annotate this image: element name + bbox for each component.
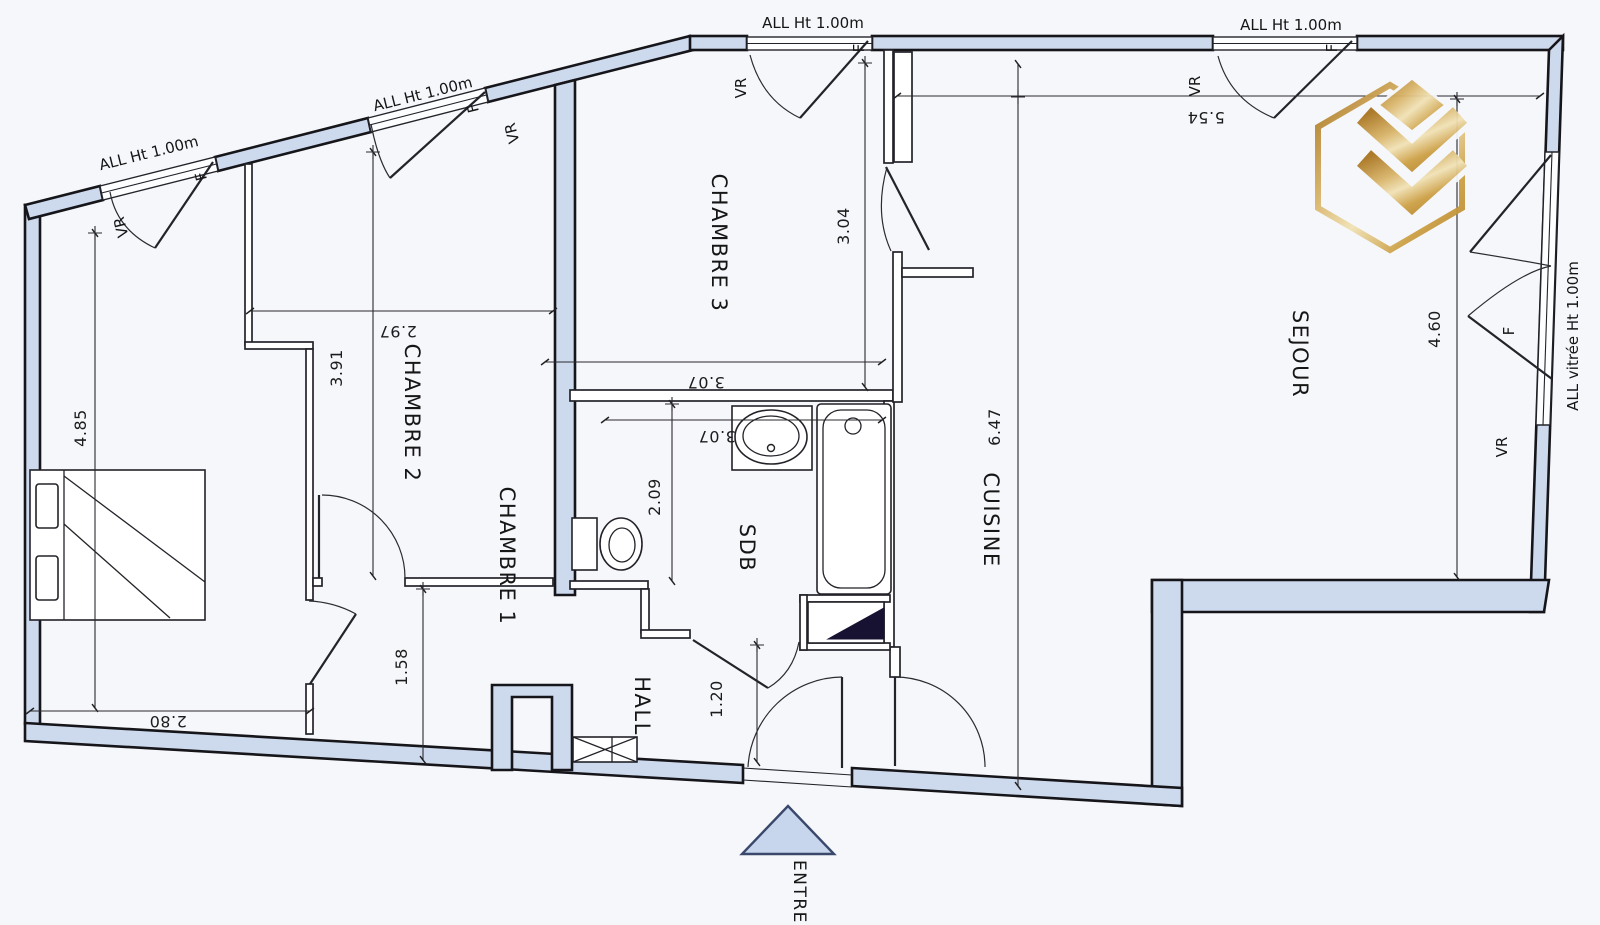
- door-window-chambre3-arc: [750, 55, 800, 118]
- dim-chambre1-width: 2.80: [149, 712, 187, 731]
- toilet-tank: [572, 518, 597, 570]
- wall-ch2-hall-left: [313, 578, 322, 586]
- wall-sdb-sw-a: [570, 581, 648, 589]
- dim-sdb-width: 3.07: [698, 427, 736, 446]
- wall-top-a: [690, 36, 747, 50]
- dim-chambre2-width: 2.97: [379, 322, 417, 341]
- vr-label-sejour-right: VR: [1493, 437, 1511, 458]
- bed-pillow-1: [36, 484, 58, 528]
- wall-slant-b: [215, 118, 371, 171]
- dim-hall-width: 1.58: [392, 648, 411, 686]
- door-ch3-cuisine-arc: [881, 167, 891, 251]
- vr-label-chambre2: VR: [501, 121, 523, 145]
- vr-label-chambre1: VR: [110, 215, 132, 239]
- wall-sdb-sw-c: [641, 630, 690, 638]
- room-label-chambre1: CHAMBRE 1: [495, 487, 519, 626]
- kitchen-counter-stub: [902, 268, 973, 277]
- door-french-upper-leaf: [1470, 155, 1551, 252]
- glazed-allege-label: ALL vitrée Ht 1.00m: [1564, 261, 1582, 411]
- wall-left: [25, 205, 40, 726]
- door-window-sejour-arc: [1218, 56, 1274, 118]
- dim-entry-width: 1.20: [707, 680, 726, 718]
- door-cuisine-arc: [895, 677, 985, 767]
- f-label-sejour-top: F: [1323, 44, 1341, 53]
- door-chambre1-arc: [309, 601, 356, 614]
- door-entrance-arc: [748, 677, 842, 767]
- allege-label-sejour: ALL Ht 1.00m: [1240, 16, 1342, 34]
- entrance-label: ENTREE: [789, 860, 809, 925]
- wall-ch2-hall-right: [405, 578, 553, 586]
- wall-top-c: [1357, 36, 1563, 50]
- wall-ch3-cuisine-lower: [893, 252, 902, 402]
- dim-chambre1-length: 4.85: [71, 409, 90, 447]
- vr-label-sejour-top: VR: [1186, 76, 1204, 97]
- dim-sejour-length: 4.60: [1425, 310, 1444, 348]
- wall-sejour-step-bottom: [1152, 580, 1549, 612]
- wall-top-b: [872, 36, 1213, 50]
- wall-sdb-sw-b: [641, 589, 649, 633]
- dim-sejour-width: 5.54: [1187, 108, 1225, 127]
- vr-label-chambre3: VR: [732, 78, 750, 99]
- room-label-sejour: SEJOUR: [1288, 310, 1312, 398]
- door-french-lower-arc: [1468, 266, 1551, 316]
- dim-chambre2-length: 3.91: [327, 349, 346, 387]
- wall-niche-top: [800, 595, 890, 602]
- wall-slant-a: [25, 186, 103, 219]
- room-label-sdb: SDB: [735, 524, 759, 572]
- room-label-hall: HALL: [630, 676, 654, 736]
- f-label-chambre3: F: [850, 44, 868, 53]
- wall-niche-left: [800, 595, 807, 650]
- dim-chambre3-width: 3.07: [687, 373, 725, 392]
- wall-slant-c: [485, 36, 693, 102]
- f-label-sejour-right: F: [1500, 327, 1518, 336]
- wall-step-vertical: [1152, 580, 1182, 806]
- room-label-chambre2: CHAMBRE 2: [400, 344, 424, 483]
- door-chambre1-leaf: [310, 614, 356, 684]
- allege-label-chambre3: ALL Ht 1.00m: [762, 14, 864, 32]
- floor-plan-svg: 4.85 2.80 3.91 2.97 3.04 3.07 3.07 2.09 …: [0, 0, 1600, 925]
- kitchen-counter-top: [894, 52, 912, 162]
- wall-ch1-hall-mid: [306, 349, 313, 600]
- dim-cuisine-length: 6.47: [985, 408, 1004, 446]
- door-ch3-cuisine-leaf: [886, 167, 929, 250]
- entrance-threshold-line2: [743, 780, 852, 787]
- wall-ch1-ch2-upper: [245, 164, 252, 345]
- entrance-threshold-line1: [743, 768, 852, 775]
- door-french-upper-arc: [1470, 252, 1551, 266]
- wall-hall-cuisine: [890, 647, 900, 677]
- wall-ch1-hall-lower: [306, 684, 313, 734]
- wall-ch3-sdb: [570, 390, 893, 401]
- room-label-cuisine: CUISINE: [979, 472, 1003, 567]
- door-sdb-arc: [768, 642, 799, 688]
- windows: [100, 37, 1559, 425]
- wall-niche-bottom: [800, 643, 890, 650]
- wall-bottom-right: [852, 768, 1182, 806]
- dim-sdb-depth: 2.09: [645, 478, 664, 516]
- floor-plan-page: 4.85 2.80 3.91 2.97 3.04 3.07 3.07 2.09 …: [0, 0, 1600, 925]
- brand-logo: [1318, 78, 1462, 250]
- entrance: ENTREE: [742, 806, 834, 925]
- bathtub: [817, 404, 891, 594]
- dim-chambre3-length: 3.04: [834, 207, 853, 245]
- room-label-chambre3: CHAMBRE 3: [707, 174, 731, 313]
- door-window-chambre2-arc: [371, 124, 390, 178]
- wall-ch3-cuisine-upper: [884, 50, 893, 163]
- door-chambre2-arc: [322, 495, 405, 578]
- wall-ch1-ch2-jog: [245, 342, 313, 349]
- entrance-arrow: [742, 806, 834, 854]
- bed-pillow-2: [36, 556, 58, 600]
